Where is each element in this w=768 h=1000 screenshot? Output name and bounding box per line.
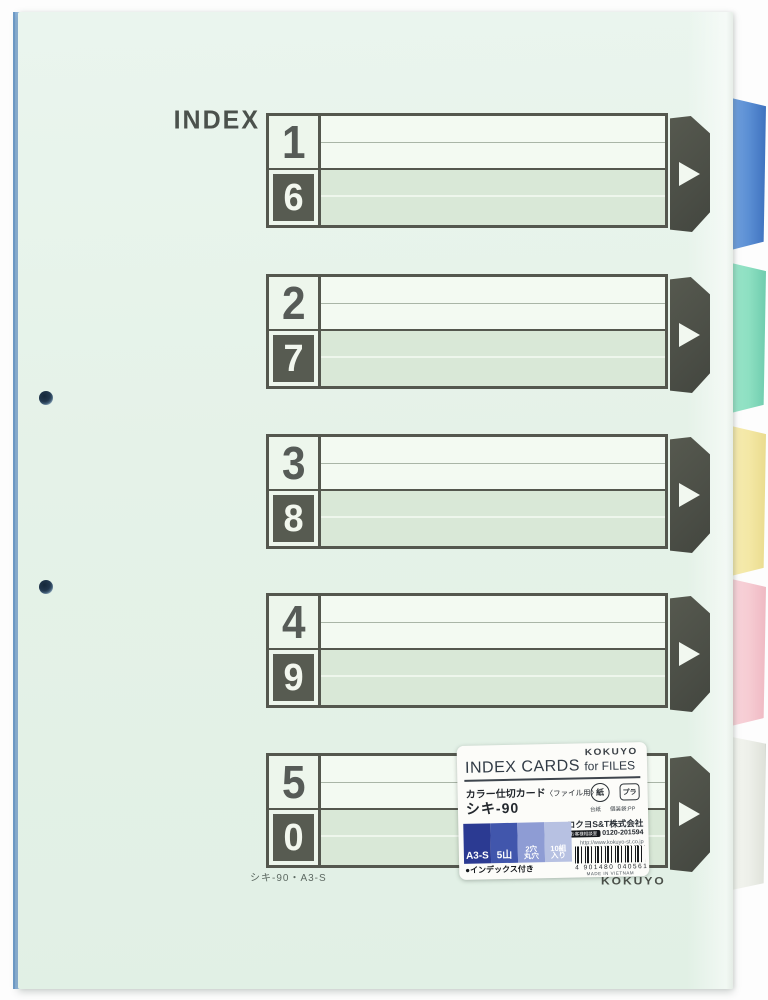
digit-bottom: 9: [283, 659, 303, 697]
digit-top: 1: [282, 119, 306, 165]
product-code-print: シキ-90・A3-S: [250, 869, 327, 884]
write-lines-top: [321, 116, 665, 170]
write-lines-bottom: [321, 170, 665, 225]
digit-bottom: 0: [283, 819, 303, 857]
index-block-2-7: 2 7: [266, 274, 668, 389]
number-cell-bottom: 7: [269, 331, 318, 386]
number-cell-bottom: 0: [269, 810, 318, 865]
spec-quantity: 10組入り: [544, 822, 572, 863]
origin-text: MADE IN VIETNAM: [575, 870, 645, 876]
dark-number-box: 9: [273, 654, 314, 701]
support-pill: お客様相談室: [567, 830, 600, 838]
right-arrow-icon: [679, 162, 700, 186]
number-cell-top: 4: [269, 596, 318, 650]
digit-bottom: 8: [283, 500, 303, 538]
label-title-suffix: for FILES: [584, 758, 635, 773]
index-block-4-9: 4 9: [266, 593, 668, 708]
index-heading: INDEX: [158, 105, 260, 135]
label-title-main: INDEX CARDS: [465, 757, 580, 776]
support-phone-row: お客様相談室 0120-201594: [567, 829, 643, 838]
write-lines-top: [321, 596, 665, 650]
number-column: 5 0: [269, 756, 321, 865]
digit-bottom: 6: [283, 179, 303, 217]
dark-number-box: 6: [273, 174, 314, 221]
write-lines-top: [321, 277, 665, 331]
write-lines-bottom: [321, 650, 665, 705]
product-photo: INDEX 1 6 2 7 3 8: [0, 0, 768, 1000]
digit-top: 5: [282, 759, 306, 805]
punch-hole-top: [39, 391, 53, 405]
right-arrow-icon: [679, 642, 700, 666]
arrow-tab: [670, 596, 710, 712]
feature-note: ●インデックス付き: [465, 863, 534, 875]
digit-top: 3: [282, 440, 306, 486]
spec-tab-count: 5山: [490, 823, 518, 864]
digit-top: 2: [282, 280, 306, 326]
recycle-paper-icon: 紙: [590, 783, 609, 802]
spec-swatches: A3-S 5山 2穴丸穴 10組入り: [463, 822, 572, 864]
index-block-3-8: 3 8: [266, 434, 668, 549]
dark-number-box: 8: [273, 495, 314, 542]
right-arrow-icon: [679, 802, 700, 826]
spec-size: A3-S: [463, 823, 491, 864]
label-title: INDEX CARDS for FILES: [465, 756, 635, 778]
write-lines-bottom: [321, 491, 665, 546]
number-column: 4 9: [269, 596, 321, 705]
number-column: 2 7: [269, 277, 321, 386]
arrow-tab: [670, 116, 710, 232]
number-column: 1 6: [269, 116, 321, 225]
write-lines: [321, 596, 665, 705]
write-lines: [321, 116, 665, 225]
number-cell-top: 1: [269, 116, 318, 170]
number-cell-top: 3: [269, 437, 318, 491]
write-lines-bottom: [321, 331, 665, 386]
number-cell-bottom: 9: [269, 650, 318, 705]
model-number: シキ-90: [466, 798, 520, 819]
number-cell-top: 2: [269, 277, 318, 331]
right-arrow-icon: [679, 483, 700, 507]
recycle-plastic-icon: プラ: [619, 783, 639, 800]
phone-number: 0120-201594: [602, 829, 643, 837]
right-arrow-icon: [679, 323, 700, 347]
recycle-plastic-caption: 個装袋:PP: [610, 804, 636, 813]
spec-holes: 2穴丸穴: [517, 822, 545, 863]
barcode: 4 901480 040561 MADE IN VIETNAM: [575, 845, 646, 876]
product-label: KOKUYO INDEX CARDS for FILES カラー仕切カード〈ファ…: [457, 742, 650, 880]
write-lines: [321, 277, 665, 386]
write-lines-top: [321, 437, 665, 491]
punch-hole-bottom: [39, 580, 53, 594]
barcode-bars: [575, 845, 645, 863]
arrow-tab: [670, 277, 710, 393]
dark-number-box: 7: [273, 335, 314, 382]
recycle-paper-caption: 台紙: [590, 805, 601, 813]
number-cell-bottom: 6: [269, 170, 318, 225]
digit-top: 4: [282, 599, 306, 645]
arrow-tab: [670, 437, 710, 553]
write-lines: [321, 437, 665, 546]
number-cell-top: 5: [269, 756, 318, 810]
number-column: 3 8: [269, 437, 321, 546]
arrow-tab: [670, 756, 710, 872]
number-cell-bottom: 8: [269, 491, 318, 546]
digit-bottom: 7: [283, 340, 303, 378]
dark-number-box: 0: [273, 814, 314, 861]
index-block-1-6: 1 6: [266, 113, 668, 228]
